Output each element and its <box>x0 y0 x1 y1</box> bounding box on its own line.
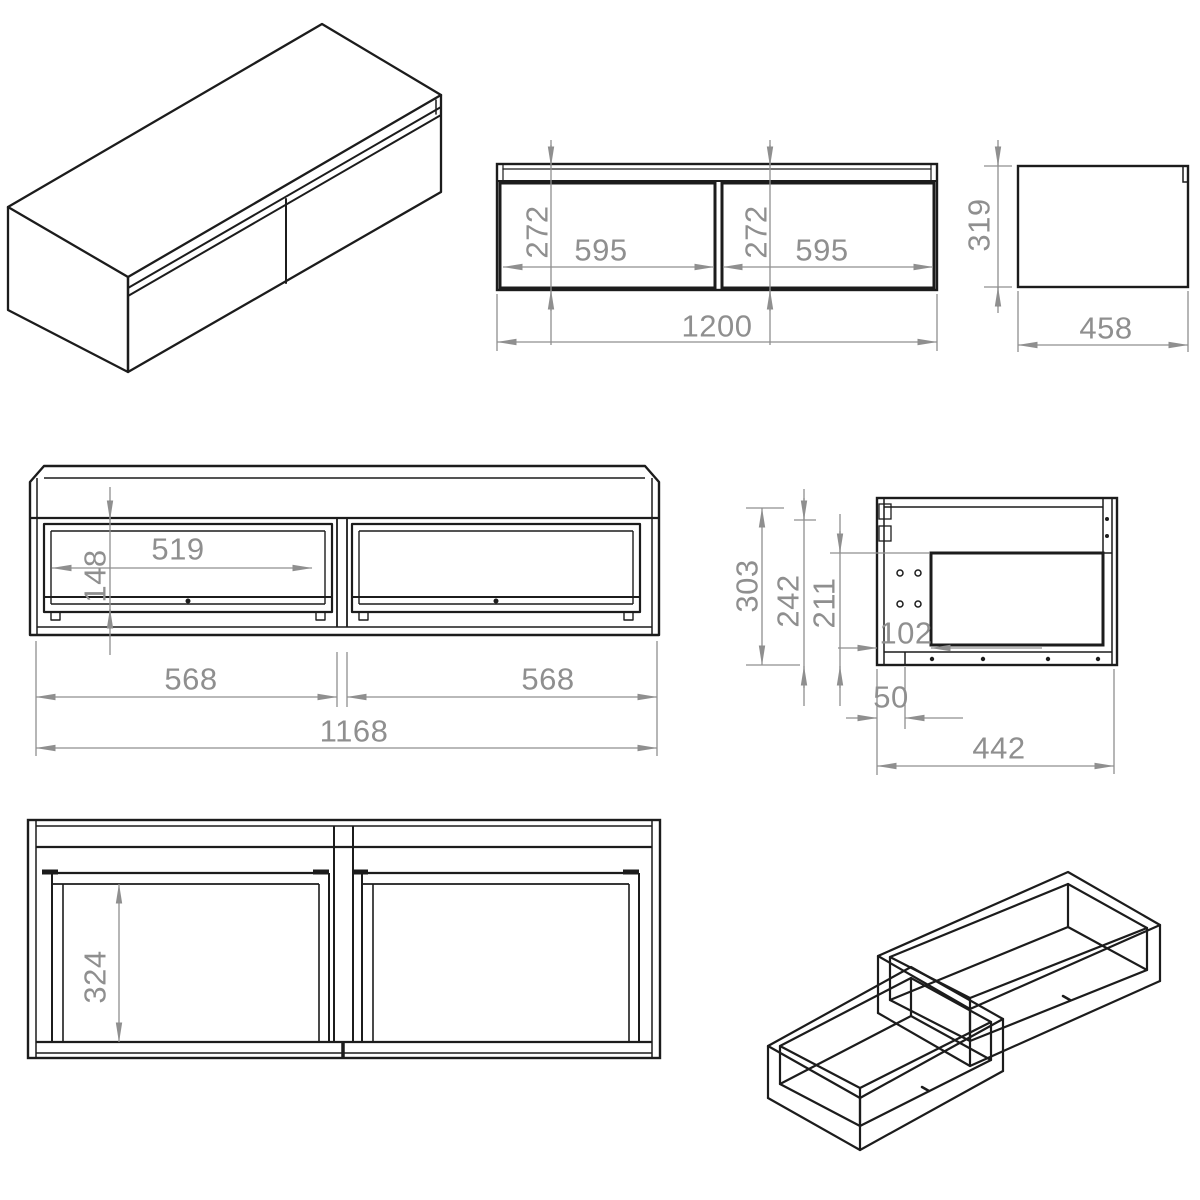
dim-label-plan-drawer-inner-depth: 324 <box>80 950 111 1003</box>
dim-label-side-height: 319 <box>964 198 995 251</box>
iso-drawer-boxes-view <box>768 872 1160 1150</box>
plan-view <box>28 820 660 1058</box>
dim-label-section-front-offset: 102 <box>879 618 932 649</box>
side-elevation-view <box>1018 166 1188 287</box>
dim-label-carcass-inner-width: 1168 <box>320 716 389 747</box>
dim-label-carcass-opening-height: 148 <box>80 549 111 602</box>
dim-label-front-drawer-height-left: 272 <box>522 205 553 258</box>
dim-label-carcass-bay-right: 568 <box>521 664 574 695</box>
dim-label-carcass-opening-width: 519 <box>151 534 204 565</box>
dim-label-section-back-height: 242 <box>773 574 804 627</box>
dim-label-section-bottom-inset: 50 <box>873 682 908 713</box>
iso-cabinet-view <box>8 24 441 372</box>
dim-label-section-height: 303 <box>732 559 763 612</box>
technical-drawing-canvas <box>0 0 1200 1200</box>
dim-label-front-overall-width: 1200 <box>682 311 753 342</box>
front-elevation-view <box>497 164 937 290</box>
technical-drawing-sheet: 272 595 272 595 1200 319 458 519 148 568… <box>0 0 1200 1200</box>
dim-label-section-pocket-height: 211 <box>809 578 840 629</box>
dim-label-front-drawer-width-right: 595 <box>795 235 848 266</box>
dim-label-front-drawer-width-left: 595 <box>574 235 627 266</box>
dim-label-front-drawer-height-right: 272 <box>741 205 772 258</box>
dim-label-side-depth: 458 <box>1079 313 1132 344</box>
carcass-front-view <box>30 466 659 635</box>
dim-label-section-depth: 442 <box>972 733 1025 764</box>
dim-label-carcass-bay-left: 568 <box>164 664 217 695</box>
